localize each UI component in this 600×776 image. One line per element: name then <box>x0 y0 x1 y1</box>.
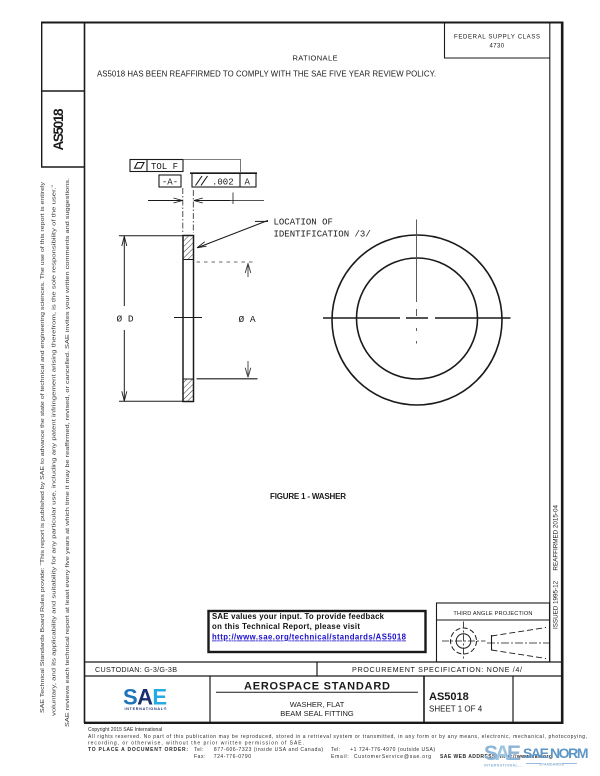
svg-text:SAE: SAE <box>123 685 166 710</box>
svg-text:WASHER, FLAT: WASHER, FLAT <box>290 700 345 709</box>
svg-text:LOCATION OF: LOCATION OF <box>274 218 333 228</box>
svg-text:Ø A: Ø A <box>238 314 255 325</box>
svg-text:http://www.sae.org/technical/s: http://www.sae.org/technical/standards/A… <box>212 633 407 642</box>
svg-text:A: A <box>245 178 251 188</box>
svg-text:SAE Technical Standards Board: SAE Technical Standards Board Rules prov… <box>40 182 46 713</box>
svg-text:IDENTIFICATION /3/: IDENTIFICATION /3/ <box>274 230 371 240</box>
svg-text:FIGURE 1 - WASHER: FIGURE 1 - WASHER <box>270 492 346 501</box>
svg-text:Tel: 877-606-7323 (inside: Tel: 877-606-7323 (inside USA and Canada… <box>194 747 323 753</box>
svg-text:Tel: +1 724-776-4970 (outs: Tel: +1 724-776-4970 (outside USA) <box>331 747 435 753</box>
svg-text:AS5018 HAS BEEN REAFFIRMED TO: AS5018 HAS BEEN REAFFIRMED TO COMPLY WIT… <box>97 70 436 79</box>
svg-text:AS5018: AS5018 <box>51 108 66 150</box>
svg-text:INTERNATIONAL…: INTERNATIONAL… <box>484 764 522 768</box>
svg-text:SHEET 1 OF 4: SHEET 1 OF 4 <box>429 705 483 714</box>
svg-text:PROCUREMENT SPECIFICATION: NON: PROCUREMENT SPECIFICATION: NONE /4/ <box>352 665 522 674</box>
svg-text:TO PLACE A DOCUMENT ORDER:: TO PLACE A DOCUMENT ORDER: <box>88 747 188 753</box>
svg-text:CUSTODIAN: G-3/G-3B: CUSTODIAN: G-3/G-3B <box>95 665 177 674</box>
svg-text:TOL F: TOL F <box>151 162 178 172</box>
svg-text:INTERNATIONAL®: INTERNATIONAL® <box>125 707 167 711</box>
svg-text:SAE reviews each technical rep: SAE reviews each technical report at lea… <box>65 178 71 727</box>
svg-text:4730: 4730 <box>490 44 505 50</box>
svg-text:on this Technical Report, plea: on this Technical Report, please visit <box>212 622 360 631</box>
svg-text:SAE values your input. To prov: SAE values your input. To provide feedba… <box>212 612 385 621</box>
svg-text:ISSUED 1995-12 REAFFIRMED: ISSUED 1995-12 REAFFIRMED 2015-04 <box>553 505 560 629</box>
svg-text:Copyright 2015 SAE Internation: Copyright 2015 SAE International <box>88 727 162 733</box>
svg-text:THIRD ANGLE PROJECTION: THIRD ANGLE PROJECTION <box>453 611 532 617</box>
svg-text:AS5018: AS5018 <box>429 691 469 703</box>
svg-text:FEDERAL SUPPLY CLASS: FEDERAL SUPPLY CLASS <box>454 35 540 41</box>
svg-text:All rights reserved. No part o: All rights reserved. No part of this pub… <box>88 734 587 740</box>
svg-text:AEROSPACE STANDARD: AEROSPACE STANDARD <box>244 681 390 693</box>
svg-text:SAE NORM: SAE NORM <box>523 745 589 761</box>
svg-text:Fax: 724-776-0790: Fax: 724-776-0790 <box>194 754 251 760</box>
svg-text:voluntary, and its applicabili: voluntary, and its applicability and sui… <box>52 185 58 716</box>
svg-text:RATIONALE: RATIONALE <box>293 54 338 63</box>
svg-text:SAE: SAE <box>484 742 521 765</box>
svg-text:BEAM SEAL FITTING: BEAM SEAL FITTING <box>280 709 354 718</box>
svg-text:.002: .002 <box>212 178 234 188</box>
svg-text:recording, or otherwise, witho: recording, or otherwise, without the pri… <box>88 741 304 747</box>
svg-text:Ø D: Ø D <box>116 314 133 325</box>
svg-text:STANDARDS: STANDARDS <box>539 762 564 767</box>
svg-text:Email: CustomerService@sae.or: Email: CustomerService@sae.org <box>331 754 431 760</box>
svg-text:-A-: -A- <box>162 178 178 188</box>
